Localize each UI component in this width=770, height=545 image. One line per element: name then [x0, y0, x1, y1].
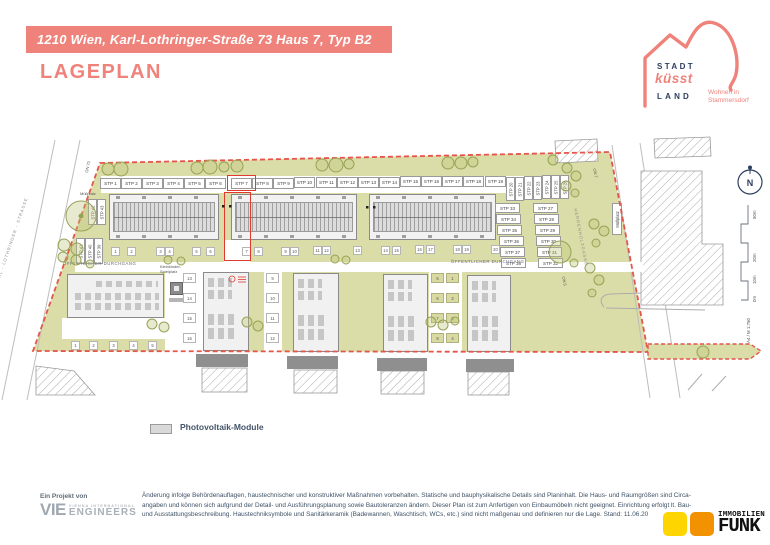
parking-spot-36: STP 36 [499, 236, 524, 246]
unit-number: 1 [446, 273, 459, 283]
logo-land: LAND [657, 92, 692, 101]
house-number: 15 [392, 246, 401, 255]
svg-text:10m: 10m [752, 275, 757, 284]
on73-label: ON 73 [84, 161, 91, 173]
house-number: 11 [313, 246, 322, 255]
svg-text:50m: 50m [752, 210, 757, 219]
house-number: 3 [156, 247, 165, 256]
parking-spot-43: STP 43 [97, 199, 106, 225]
vie-abbr: VIE [40, 502, 66, 517]
parking-spot-3: STP 3 [142, 178, 163, 189]
garden-number: 2 [89, 341, 98, 350]
public-passage-label-left: ÖFFENTLICHER DURCHGANG [63, 261, 136, 266]
svg-text:20m: 20m [752, 253, 757, 262]
logo-kuesst: küsst [655, 71, 693, 86]
stadt-kuesst-land-logo: STADT küsst LAND Wohnen in Stammersdorf [638, 16, 770, 120]
house-number: 9 [281, 247, 290, 256]
logo-tagline: Wohnen in Stammersdorf [708, 89, 749, 105]
vie-engineers-logo: VIE VIENNA INTERNATIONAL ENGINEERS [40, 502, 137, 517]
house-number: 14 [381, 246, 390, 255]
unit-number: 5 [431, 273, 444, 283]
parking-spot-28: STP 28 [534, 214, 559, 224]
unit-number: 3 [446, 313, 459, 323]
house-number: 13 [353, 246, 362, 255]
parking-spot-42: STP 42 [88, 199, 97, 225]
unit-number: 13 [183, 273, 196, 283]
parking-spot-31: STP 31 [537, 247, 562, 257]
house-number: 17 [426, 245, 435, 254]
parking-spot-17: STP 17 [442, 176, 463, 187]
building-g [383, 274, 428, 352]
unit-number: 2 [446, 293, 459, 303]
playground-equipment [170, 282, 183, 295]
house-number: 19 [462, 245, 471, 254]
unit-number: 4 [446, 333, 459, 343]
house-number: 5 [192, 247, 201, 256]
on5-label: ON 5 [561, 276, 568, 286]
scale-bar: 0m 10m 20m 50m A4 / M 1:750 [741, 205, 757, 343]
building-bases [196, 354, 514, 372]
parking-spot-16: STP 16 [421, 176, 442, 187]
parking-spot-25: STP 25 [551, 175, 560, 199]
parking-spot-23: STP 23 [533, 176, 542, 200]
parking-spot-30: STP 30 [536, 236, 561, 246]
parking-spot-35: STP 35 [497, 225, 522, 235]
parking-spot-4: STP 4 [163, 178, 184, 189]
street-label-herrenholzgasse: HERRENHOLZGASSE [573, 208, 589, 266]
parking-spot-27: STP 27 [533, 203, 558, 213]
playground-bench [169, 298, 183, 302]
page-title: LAGEPLAN [40, 61, 162, 84]
funk-orange-square-icon [690, 512, 714, 536]
logo-stadt: STADT [657, 62, 695, 71]
project-prefix: Ein Projekt von [40, 493, 87, 500]
unit-number: 11 [266, 313, 279, 323]
curb-line [601, 291, 718, 307]
house-number: 4 [165, 247, 174, 256]
unit-number: 12 [266, 333, 279, 343]
parking-spot-19: STP 19 [485, 176, 506, 187]
parking-spot-6: STP 6 [205, 178, 226, 189]
playground-label: Kleinkinder- Spielplatz [160, 265, 181, 274]
parking-spot-33: STP 33 [495, 203, 520, 213]
funk-line2: FUNK [718, 519, 765, 534]
garden-number: 5 [148, 341, 157, 350]
unit-number: 10 [266, 293, 279, 303]
pv-roof [235, 202, 353, 232]
house-number: 16 [415, 245, 424, 254]
sheet-scale-label: A4 / M 1:750 [746, 318, 751, 343]
house-number: 18 [453, 245, 462, 254]
parking-spot-10: STP 10 [294, 177, 315, 188]
parking-spot-29: STP 29 [535, 225, 560, 235]
house-number: 1 [111, 247, 120, 256]
public-passage-label-right: ÖFFENTLICHER DURCHGANG [451, 259, 524, 264]
dormer-strip [116, 196, 212, 199]
parking-spot-32: STP 32 [538, 258, 563, 268]
parking-spot-22: STP 22 [524, 176, 533, 200]
parking-spot-9: STP 9 [273, 178, 294, 189]
highlight-stp7-box [227, 175, 256, 191]
garden-number: 3 [109, 341, 118, 350]
building-f [293, 273, 339, 352]
building-h [467, 275, 511, 352]
funk-yellow-square-icon [663, 512, 687, 536]
pv-roof [113, 202, 215, 232]
unit-number: 7 [431, 313, 444, 323]
parking-spot-2: STP 2 [121, 178, 142, 189]
parking-spot-5: STP 5 [184, 178, 205, 189]
pv-legend-label: Photovoltaik-Module [180, 422, 264, 432]
garden-number: 4 [129, 341, 138, 350]
house-number: 20 [491, 245, 500, 254]
unit-number: 9 [266, 273, 279, 283]
house-number: 8 [254, 247, 263, 256]
immobilien-funk-logo: IMMOBILIEN FUNK [660, 510, 765, 540]
parking-spot-18: STP 18 [463, 176, 484, 187]
parking-spot-26: STP 26 [560, 175, 569, 199]
parking-spot-34: STP 34 [496, 214, 521, 224]
muellplatz-label-right: Müllplatz [612, 203, 622, 235]
garden-number: 1 [71, 341, 80, 350]
unit-number: 16 [183, 333, 196, 343]
parking-spot-15: STP 15 [400, 176, 421, 187]
unit-number: 15 [183, 313, 196, 323]
parking-spot-11: STP 11 [316, 177, 337, 188]
parking-spot-24: STP 24 [542, 175, 551, 199]
unit-number: 14 [183, 293, 196, 303]
house-number: 12 [322, 246, 331, 255]
pv-legend-swatch [150, 424, 172, 434]
unit-number: 6 [431, 293, 444, 303]
svg-text:0m: 0m [752, 296, 757, 302]
path-under-d [62, 318, 165, 339]
house-number: 2 [127, 247, 136, 256]
address-banner: 1210 Wien, Karl-Lothringer-Straße 73 Hau… [26, 26, 392, 53]
parking-spot-12: STP 12 [337, 177, 358, 188]
parking-spot-20: STP 20 [506, 177, 515, 201]
disclaimer-text: Änderung infolge Behördenauflagen, haust… [142, 491, 722, 520]
parking-spot-13: STP 13 [358, 177, 379, 188]
house-number: 10 [290, 247, 299, 256]
building-e [203, 272, 249, 351]
pv-roof [373, 202, 492, 232]
north-arrow-icon: N [738, 166, 762, 195]
house-number: 6 [206, 247, 215, 256]
parking-spot-21: STP 21 [515, 177, 524, 201]
highlight-haus7-strip [224, 192, 251, 261]
building-d [67, 274, 164, 318]
muellplatz-label-left: Müllplatz [80, 191, 96, 196]
boundary-arrow-strip [648, 344, 761, 359]
street-label-karl-lothringer: KARL - LOTHRINGER - STRASSE [0, 197, 29, 286]
parking-spot-37: STP 37 [500, 247, 525, 257]
row-building-a [109, 194, 219, 240]
svg-text:N: N [747, 178, 754, 188]
vie-line2: ENGINEERS [69, 508, 137, 517]
on7-label: ON 7 [592, 168, 599, 178]
parking-spot-1: STP 1 [100, 178, 121, 189]
unit-number: 8 [431, 333, 444, 343]
row-building-c [369, 194, 496, 240]
parking-spot-14: STP 14 [379, 177, 400, 188]
